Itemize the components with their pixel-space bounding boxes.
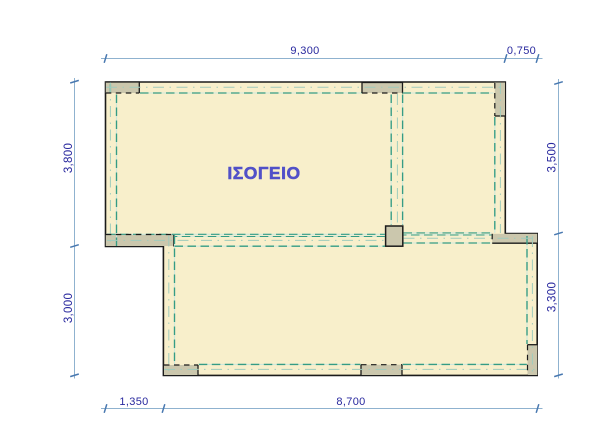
svg-text:3,500: 3,500 xyxy=(547,142,559,172)
svg-text:3,000: 3,000 xyxy=(63,293,75,323)
svg-text:3,800: 3,800 xyxy=(63,143,75,173)
svg-text:ΙΣΟΓΕΙΟ: ΙΣΟΓΕΙΟ xyxy=(227,163,300,183)
svg-text:0,750: 0,750 xyxy=(507,45,536,57)
svg-text:9,300: 9,300 xyxy=(290,45,319,57)
svg-text:1,350: 1,350 xyxy=(119,396,148,408)
svg-text:3,300: 3,300 xyxy=(547,282,559,312)
svg-text:8,700: 8,700 xyxy=(336,396,365,408)
